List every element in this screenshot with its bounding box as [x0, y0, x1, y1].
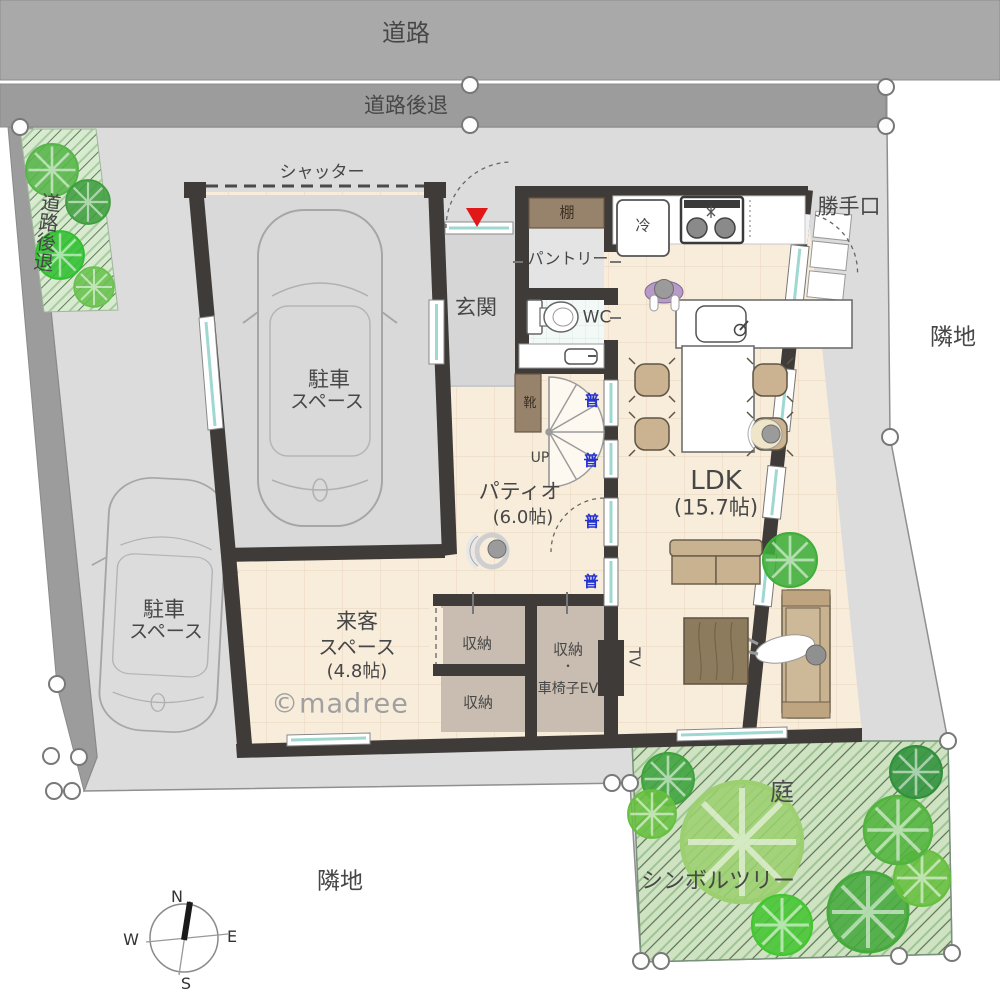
guest-label-line2: スペース — [318, 637, 396, 657]
storage1-label: 収納 — [462, 637, 492, 652]
compass-w-label: W — [123, 932, 139, 948]
sofa-top — [670, 540, 762, 584]
floor-plan: 道路 道路後退 道路後退 シャッター 勝手口 隣地 隣地 庭 シンボルツリー 駐… — [0, 0, 1000, 1000]
tree-icon — [864, 796, 932, 864]
entrance-label: 玄関 — [455, 298, 497, 319]
patio-name-label: パティオ — [479, 482, 562, 503]
kitchen-island — [676, 300, 852, 348]
patio-size-label: (6.0帖) — [493, 509, 554, 527]
storage-ev-label-line2: ・ — [562, 660, 574, 672]
pantry-label: パントリー — [528, 251, 609, 267]
window-mark-label: 普 — [584, 515, 599, 530]
neighbor-right-label: 隣地 — [930, 327, 976, 350]
shutter-label: シャッター — [280, 165, 365, 182]
watermark: ©madree — [271, 691, 409, 718]
road-band — [0, 0, 1000, 80]
parking-label-line2: スペース — [129, 623, 203, 642]
back-door-label: 勝手口 — [818, 197, 881, 218]
shoes-label: 靴 — [522, 396, 535, 409]
plant-icon — [763, 533, 817, 587]
low-table — [684, 618, 748, 684]
compass-s-label: S — [181, 976, 191, 992]
garden — [628, 741, 952, 962]
dining-table — [682, 346, 754, 452]
garage-label-line1: 駐車 — [308, 370, 350, 391]
window-mark-label: 普 — [583, 575, 598, 590]
neighbor-bottom-label: 隣地 — [317, 871, 363, 894]
window-mark-label: 普 — [584, 394, 599, 409]
parking-label-line1: 駐車 — [143, 600, 185, 621]
guest-label-line3: (4.8帖) — [327, 663, 388, 681]
storage-ev-label-line1: 収納 — [553, 643, 583, 658]
shelf-label: 棚 — [559, 206, 574, 221]
tree-icon — [74, 267, 114, 307]
symbol-tree-label: シンボルツリー — [641, 871, 795, 893]
ldk-size-label: (15.7帖) — [674, 498, 758, 519]
window-mark-label: 普 — [583, 454, 598, 469]
tree-icon — [752, 895, 812, 955]
compass-n-label: N — [171, 889, 183, 905]
tree-icon — [628, 790, 676, 838]
stairs-up-label: UP — [531, 451, 550, 465]
road-label: 道路 — [382, 21, 430, 45]
guest-label-line1: 来客 — [336, 612, 378, 633]
garden-label: 庭 — [770, 780, 794, 804]
toilet — [527, 300, 578, 334]
compass-e-label: E — [227, 929, 237, 945]
storage-ev-label-line3: 車椅子EV — [538, 682, 598, 696]
tree-icon — [890, 746, 942, 798]
storage2-label: 収納 — [463, 696, 493, 711]
tree-icon — [66, 180, 110, 224]
road-setback-top-label: 道路後退 — [364, 96, 448, 117]
garage-label-line2: スペース — [290, 393, 364, 412]
person-dining — [748, 419, 782, 449]
tv-label: TV — [627, 647, 642, 666]
wc-sink-counter — [519, 344, 604, 368]
ldk-name-label: LDK — [690, 468, 742, 494]
wc-label: WC — [583, 310, 612, 327]
stove — [681, 197, 743, 243]
fridge-label: 冷 — [635, 219, 650, 234]
